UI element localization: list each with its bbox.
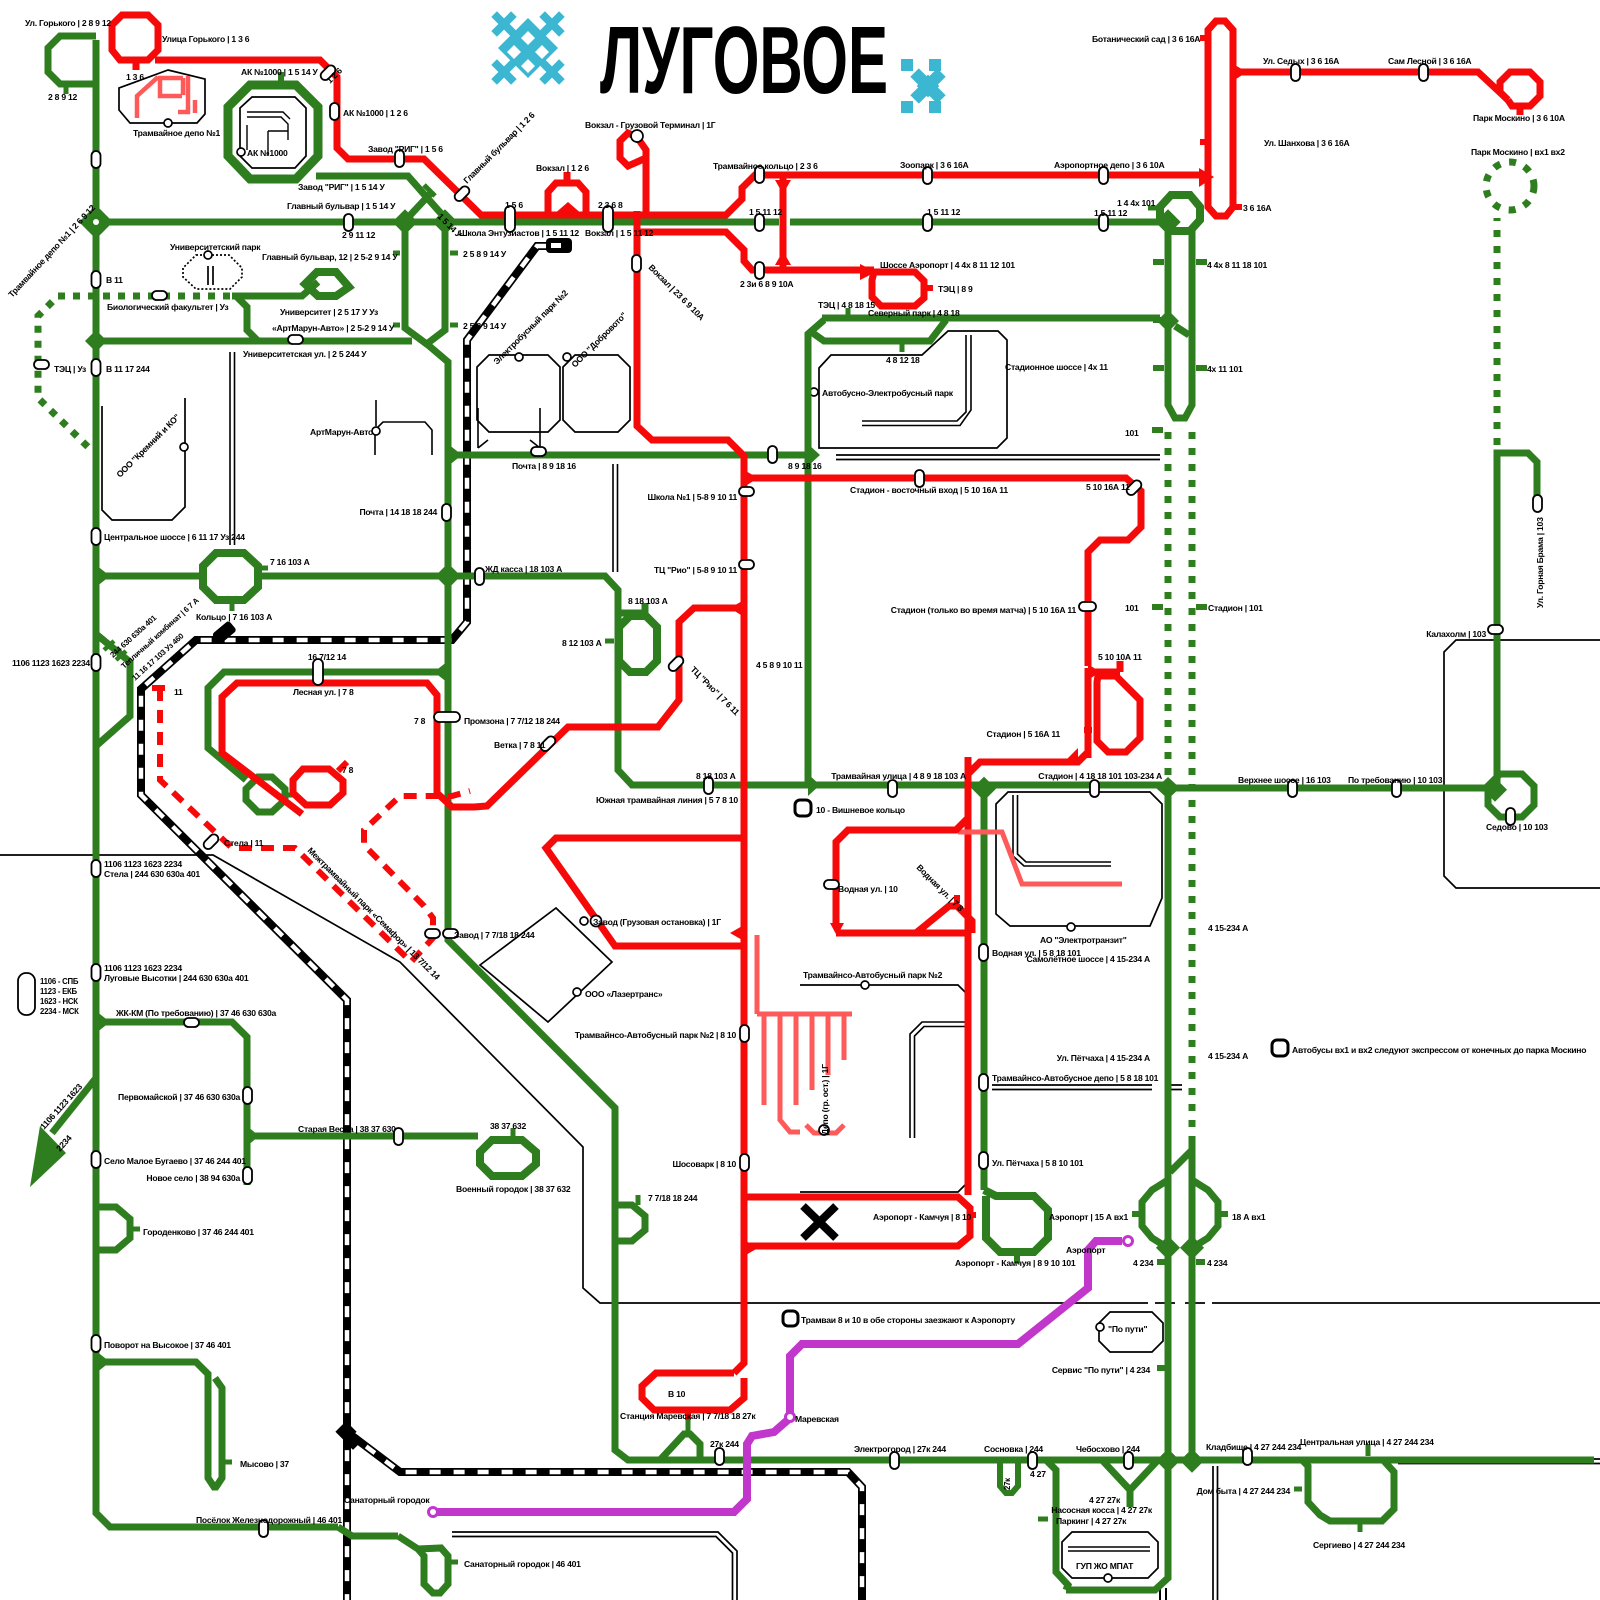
svg-text:Ул. Пётчаха | 4 15-234 А: Ул. Пётчаха | 4 15-234 А — [1057, 1053, 1150, 1063]
svg-text:Верхнее шоссе | 16 103: Верхнее шоссе | 16 103 — [1238, 775, 1331, 785]
svg-text:Аэропорт | 15 А вх1: Аэропорт | 15 А вх1 — [1049, 1212, 1129, 1222]
svg-text:Санаторный городок: Санаторный городок — [344, 1495, 430, 1505]
svg-text:Южная трамвайная линия | 5 7 8: Южная трамвайная линия | 5 7 8 10 — [596, 795, 738, 805]
svg-text:Аэропорт - Камчуя | 8 10: Аэропорт - Камчуя | 8 10 — [873, 1212, 972, 1222]
svg-text:Трамвайное кольцо | 2 3 6: Трамвайное кольцо | 2 3 6 — [713, 161, 818, 171]
svg-text:4 234: 4 234 — [1207, 1258, 1228, 1268]
svg-text:101: 101 — [1125, 428, 1139, 438]
svg-text:Лесная ул. | 7 8: Лесная ул. | 7 8 — [293, 687, 354, 697]
svg-text:38 37 632: 38 37 632 — [490, 1121, 526, 1131]
svg-text:Городенково | 37 46 244 401: Городенково | 37 46 244 401 — [143, 1227, 254, 1237]
svg-text:Завод (Грузовая остановка) | 1: Завод (Грузовая остановка) | 1Г — [593, 917, 721, 927]
svg-text:2 9 11 12: 2 9 11 12 — [342, 230, 376, 240]
svg-text:8 18 103 А: 8 18 103 А — [696, 771, 736, 781]
svg-text:Трамваи 8 и 10 в обе стороны з: Трамваи 8 и 10 в обе стороны заезжают к … — [801, 1315, 1015, 1325]
svg-text:Главный бульвар, 12 | 2 5-2 9: Главный бульвар, 12 | 2 5-2 9 14 У — [262, 252, 398, 262]
svg-text:ГУП ЖО МПАТ: ГУП ЖО МПАТ — [1076, 1561, 1134, 1571]
svg-text:Самолётное шоссе | 4 15-234 А: Самолётное шоссе | 4 15-234 А — [1026, 954, 1150, 964]
svg-text:Мысово | 37: Мысово | 37 — [240, 1459, 289, 1469]
svg-text:2 5 8 9 14 У: 2 5 8 9 14 У — [463, 249, 507, 259]
svg-text:2 3и 6 8 9 10А: 2 3и 6 8 9 10А — [740, 279, 793, 289]
svg-text:Паркинг | 4 27 27к: Паркинг | 4 27 27к — [1056, 1516, 1127, 1526]
svg-text:Стадион - восточный вход | 5 1: Стадион - восточный вход | 5 10 16А 11 — [850, 485, 1008, 495]
svg-text:Ветка | 7 8 11: Ветка | 7 8 11 — [494, 740, 546, 750]
svg-text:Поворот на Высокое | 37 46 401: Поворот на Высокое | 37 46 401 — [104, 1340, 231, 1350]
svg-text:4 27 27к: 4 27 27к — [1089, 1495, 1121, 1505]
svg-text:В 11: В 11 — [106, 275, 123, 285]
svg-text:ООО «Лазертранс»: ООО «Лазертранс» — [585, 989, 663, 999]
svg-text:7 7/18 18 244: 7 7/18 18 244 — [648, 1193, 698, 1203]
svg-text:ЖД касса | 18 103 А: ЖД касса | 18 103 А — [484, 564, 562, 574]
svg-text:ТЭЦ | 8 9: ТЭЦ | 8 9 — [938, 284, 973, 294]
svg-text:10 - Вишневое кольцо: 10 - Вишневое кольцо — [816, 805, 905, 815]
svg-text:Парк Москино | вх1 вх2: Парк Москино | вх1 вх2 — [1471, 147, 1565, 157]
svg-text:4 234: 4 234 — [1133, 1258, 1154, 1268]
svg-text:АК №1000 | 1 5 14 У: АК №1000 | 1 5 14 У — [241, 67, 318, 77]
svg-text:4 8 12 18: 4 8 12 18 — [886, 355, 920, 365]
svg-text:4 15-234 А: 4 15-234 А — [1208, 1051, 1248, 1061]
svg-text:ТЦ "Рио" | 5-8 9 10 11: ТЦ "Рио" | 5-8 9 10 11 — [654, 565, 737, 575]
svg-text:Шосоварк | 8 10: Шосоварк | 8 10 — [673, 1159, 737, 1169]
svg-text:Университетский парк: Университетский парк — [170, 242, 261, 252]
svg-text:4 5 8 9 10 11: 4 5 8 9 10 11 — [756, 660, 803, 670]
svg-text:Ул. Горького | 2 8 9 12: Ул. Горького | 2 8 9 12 — [25, 18, 111, 28]
svg-text:Центральная улица | 4 27 244 2: Центральная улица | 4 27 244 234 — [1300, 1437, 1434, 1447]
svg-text:1 5 11 12: 1 5 11 12 — [927, 207, 961, 217]
svg-text:Вокзал | 1 5 11 12: Вокзал | 1 5 11 12 — [585, 228, 654, 238]
svg-text:7 16 103 А: 7 16 103 А — [270, 557, 310, 567]
svg-text:Университет | 2 5 17 У Уз: Университет | 2 5 17 У Уз — [280, 307, 378, 317]
svg-text:Трамвайное депо №1: Трамвайное депо №1 — [133, 128, 221, 138]
svg-text:4х 11 101: 4х 11 101 — [1207, 364, 1243, 374]
svg-text:Электрогород | 27к 244: Электрогород | 27к 244 — [854, 1444, 946, 1454]
svg-text:7 8: 7 8 — [414, 716, 426, 726]
svg-text:Ул. Шанхова | 3 6 16А: Ул. Шанхова | 3 6 16А — [1264, 138, 1349, 148]
svg-text:Зоопарк | 3 6 16А: Зоопарк | 3 6 16А — [900, 160, 968, 170]
svg-text:Сергиево | 4 27 244 234: Сергиево | 4 27 244 234 — [1313, 1540, 1405, 1550]
svg-text:Университетская ул. | 2 5 244: Университетская ул. | 2 5 244 У — [243, 349, 367, 359]
svg-text:Трамвайнсо-Автобусный парк №2: Трамвайнсо-Автобусный парк №2 — [803, 970, 943, 980]
svg-text:2 5 8 9 14 У: 2 5 8 9 14 У — [463, 321, 507, 331]
svg-text:«АртМарун-Авто» | 2 5-2 9 14 У: «АртМарун-Авто» | 2 5-2 9 14 У — [272, 323, 395, 333]
svg-text:1 5 6: 1 5 6 — [505, 200, 523, 210]
svg-text:Депо (гр. ост.) | 1Г: Депо (гр. ост.) | 1Г — [820, 1064, 830, 1135]
svg-text:1106 1123 1623 2234: 1106 1123 1623 2234 — [104, 963, 182, 973]
svg-text:5 10 16А 11: 5 10 16А 11 — [1086, 482, 1130, 492]
svg-text:ТЭЦ | 4 8 18 15: ТЭЦ | 4 8 18 15 — [818, 300, 875, 310]
svg-text:Калахолм | 103: Калахолм | 103 — [1426, 629, 1486, 639]
svg-text:11: 11 — [174, 687, 183, 697]
svg-text:16 7/12 14: 16 7/12 14 — [308, 652, 347, 662]
svg-text:4 15-234 А: 4 15-234 А — [1208, 923, 1248, 933]
svg-text:Ул. Седых | 3 6 16А: Ул. Седых | 3 6 16А — [1263, 56, 1339, 66]
svg-text:В 11 17 244: В 11 17 244 — [106, 364, 150, 374]
svg-text:2234 - МСК: 2234 - МСК — [40, 1007, 79, 1016]
svg-text:ЛУГОВОЕ: ЛУГОВОЕ — [600, 7, 888, 114]
svg-text:27к 244: 27к 244 — [710, 1439, 739, 1449]
svg-text:Старая Весна | 38 37 630: Старая Весна | 38 37 630 — [298, 1124, 396, 1134]
svg-text:Новое село | 38 94 630а: Новое село | 38 94 630а — [146, 1173, 240, 1183]
svg-text:Село Малое Бугаево | 37 46 244: Село Малое Бугаево | 37 46 244 401 — [104, 1156, 246, 1166]
svg-text:4 27: 4 27 — [1030, 1469, 1046, 1479]
svg-text:Центральное шоссе | 6 11 17 Уз: Центральное шоссе | 6 11 17 Уз 244 — [104, 532, 245, 542]
svg-text:Северный парк | 4 8 18: Северный парк | 4 8 18 — [868, 308, 960, 318]
svg-text:Школа Энтузиастов | 1 5 11 12: Школа Энтузиастов | 1 5 11 12 — [459, 228, 579, 238]
svg-text:8 18 103 А: 8 18 103 А — [628, 596, 668, 606]
svg-text:5 10 10А 11: 5 10 10А 11 — [1098, 652, 1142, 662]
svg-text:ЖК-КМ (По требованию) | 37 46: ЖК-КМ (По требованию) | 37 46 630 630а — [115, 1008, 277, 1018]
svg-text:Санаторный городок | 46 401: Санаторный городок | 46 401 — [464, 1559, 581, 1569]
svg-text:Дом быта | 4 27 244 234: Дом быта | 4 27 244 234 — [1197, 1486, 1291, 1496]
svg-text:2 3 6 8: 2 3 6 8 — [598, 200, 623, 210]
svg-text:Стадион | 101: Стадион | 101 — [1208, 603, 1263, 613]
svg-text:1123 - ЕКБ: 1123 - ЕКБ — [40, 987, 78, 996]
svg-text:Седово | 10 103: Седово | 10 103 — [1486, 822, 1548, 832]
svg-text:101: 101 — [1125, 603, 1139, 613]
svg-text:Трамвайнсо-Автобусное депо | 5: Трамвайнсо-Автобусное депо | 5 8 18 101 — [992, 1073, 1159, 1083]
svg-text:2 8 9 12: 2 8 9 12 — [48, 92, 78, 102]
svg-text:1106 1123 1623 2234: 1106 1123 1623 2234 — [12, 658, 90, 668]
svg-text:Первомайской | 37 46 630 630а: Первомайской | 37 46 630 630а — [118, 1092, 240, 1102]
svg-text:1 5 11 12: 1 5 11 12 — [749, 207, 783, 217]
svg-text:Главный бульвар | 1 5 14 У: Главный бульвар | 1 5 14 У — [287, 201, 396, 211]
svg-text:Чебосхово | 244: Чебосхово | 244 — [1076, 1444, 1140, 1454]
svg-text:1 4 4х 101: 1 4 4х 101 — [1117, 198, 1156, 208]
svg-text:Ул. Пётчаха | 5 8 10 101: Ул. Пётчаха | 5 8 10 101 — [992, 1158, 1084, 1168]
svg-text:Кладбище | 4 27 244 234: Кладбище | 4 27 244 234 — [1206, 1442, 1302, 1452]
svg-text:1106 1123 1623 2234: 1106 1123 1623 2234 — [104, 859, 182, 869]
svg-text:АК №1000: АК №1000 — [247, 148, 288, 158]
svg-text:В 10: В 10 — [668, 1389, 686, 1399]
svg-text:3 6 16А: 3 6 16А — [1243, 203, 1271, 213]
svg-text:Школа №1 | 5-8 9 10 11: Школа №1 | 5-8 9 10 11 — [647, 492, 737, 502]
svg-text:1 3 6: 1 3 6 — [126, 72, 144, 82]
svg-text:Посёлок Железнодорожный | 46 4: Посёлок Железнодорожный | 46 401 — [196, 1515, 342, 1525]
svg-text:АО "Электротранзит": АО "Электротранзит" — [1040, 935, 1127, 945]
svg-text:По требованию | 10 103: По требованию | 10 103 — [1348, 775, 1443, 785]
svg-text:Биологический факультет | Уз: Биологический факультет | Уз — [107, 302, 228, 312]
svg-text:Трамвайная улица | 4 8 9 18 10: Трамвайная улица | 4 8 9 18 103 А — [831, 771, 966, 781]
svg-text:Улица Горького | 1 3 6: Улица Горького | 1 3 6 — [162, 34, 250, 44]
svg-text:Стадион (только во время матча: Стадион (только во время матча) | 5 10 1… — [891, 605, 1077, 615]
svg-text:Стадион | 4 18 18 101 103-234: Стадион | 4 18 18 101 103-234 А — [1038, 771, 1162, 781]
svg-text:8 9 18 16: 8 9 18 16 — [788, 461, 822, 471]
svg-text:Промзона | 7 7/12 18 244: Промзона | 7 7/12 18 244 — [464, 716, 560, 726]
svg-text:Вокзал | 1 2 6: Вокзал | 1 2 6 — [536, 163, 589, 173]
svg-text:Водная ул. | 10: Водная ул. | 10 — [838, 884, 898, 894]
svg-text:Вокзал - Грузовой Терминал | 1: Вокзал - Грузовой Терминал | 1Г — [585, 120, 716, 130]
svg-text:Сервис "По пути" | 4 234: Сервис "По пути" | 4 234 — [1052, 1365, 1151, 1375]
svg-text:Завод "РИГ" | 1 5 14 У: Завод "РИГ" | 1 5 14 У — [298, 182, 385, 192]
svg-text:Сосновка | 244: Сосновка | 244 — [984, 1444, 1043, 1454]
svg-text:Луговые Высотки | 244 630 630а: Луговые Высотки | 244 630 630а 401 — [104, 973, 249, 983]
svg-text:Маревская: Маревская — [795, 1414, 839, 1424]
svg-text:8 12 103 А: 8 12 103 А — [562, 638, 602, 648]
svg-text:Стела | 11: Стела | 11 — [224, 838, 264, 848]
svg-text:Сам Лесной | 3 6 16А: Сам Лесной | 3 6 16А — [1388, 56, 1471, 66]
svg-text:Станция Маревская | 7 7/18 18: Станция Маревская | 7 7/18 18 27к — [620, 1411, 756, 1421]
svg-text:Шоссе Аэропорт | 4 4х 8 11 12: Шоссе Аэропорт | 4 4х 8 11 12 101 — [880, 260, 1015, 270]
svg-text:"По пути": "По пути" — [1108, 1324, 1147, 1334]
svg-text:Завод "РИГ" | 1 5 6: Завод "РИГ" | 1 5 6 — [368, 144, 443, 154]
svg-text:Завод | 7 7/18 18 244: Завод | 7 7/18 18 244 — [454, 930, 535, 940]
svg-text:Аэропорт - Камчуя | 8 9 10 101: Аэропорт - Камчуя | 8 9 10 101 — [955, 1258, 1076, 1268]
svg-text:Трамвайнсо-Автобусный парк №2: Трамвайнсо-Автобусный парк №2 | 8 10 — [575, 1030, 737, 1040]
svg-text:Кольцо | 7 16 103 А: Кольцо | 7 16 103 А — [196, 612, 272, 622]
svg-text:Военный городок | 38 37 632: Военный городок | 38 37 632 — [456, 1184, 571, 1194]
svg-text:Аэропортное депо | 3 6 10А: Аэропортное депо | 3 6 10А — [1054, 160, 1164, 170]
svg-text:Ботанический сад | 3 6 16А: Ботанический сад | 3 6 16А — [1092, 34, 1200, 44]
svg-text:Стадионное шоссе | 4х 11: Стадионное шоссе | 4х 11 — [1005, 362, 1108, 372]
svg-text:1 5 11 12: 1 5 11 12 — [1094, 208, 1128, 218]
svg-text:Насосная косса | 4 27 27к: Насосная косса | 4 27 27к — [1051, 1505, 1153, 1515]
svg-text:27к: 27к — [1003, 1478, 1012, 1490]
svg-text:Автобусы вх1 и вх2 следуют экс: Автобусы вх1 и вх2 следуют экспрессом от… — [1292, 1045, 1586, 1055]
svg-text:ТЭЦ | Уз: ТЭЦ | Уз — [54, 364, 86, 374]
svg-text:Стела | 244 630 630а 401: Стела | 244 630 630а 401 — [104, 869, 200, 879]
svg-text:Аэропорт: Аэропорт — [1066, 1245, 1105, 1255]
svg-text:АК №1000 | 1 2 6: АК №1000 | 1 2 6 — [343, 108, 408, 118]
svg-text:Ул. Горная Брама | 103: Ул. Горная Брама | 103 — [1535, 517, 1545, 608]
svg-text:7 8: 7 8 — [342, 765, 354, 775]
svg-text:Почта | 14 18 18 244: Почта | 14 18 18 244 — [359, 507, 437, 517]
svg-text:18 А вх1: 18 А вх1 — [1232, 1212, 1266, 1222]
svg-text:Стадион | 5 16А 11: Стадион | 5 16А 11 — [987, 729, 1061, 739]
svg-text:Почта | 8 9 18 16: Почта | 8 9 18 16 — [512, 461, 576, 471]
svg-text:Парк Москино | 3 6 10А: Парк Москино | 3 6 10А — [1473, 113, 1565, 123]
svg-text:1106 - СПБ: 1106 - СПБ — [40, 977, 79, 986]
svg-text:4 4х 8 11 18 101: 4 4х 8 11 18 101 — [1207, 260, 1268, 270]
svg-text:Автобусно-Электробусный парк: Автобусно-Электробусный парк — [822, 388, 954, 398]
svg-text:АртМарун-Авто: АртМарун-Авто — [310, 427, 373, 437]
svg-text:1623 - НСК: 1623 - НСК — [40, 997, 78, 1006]
